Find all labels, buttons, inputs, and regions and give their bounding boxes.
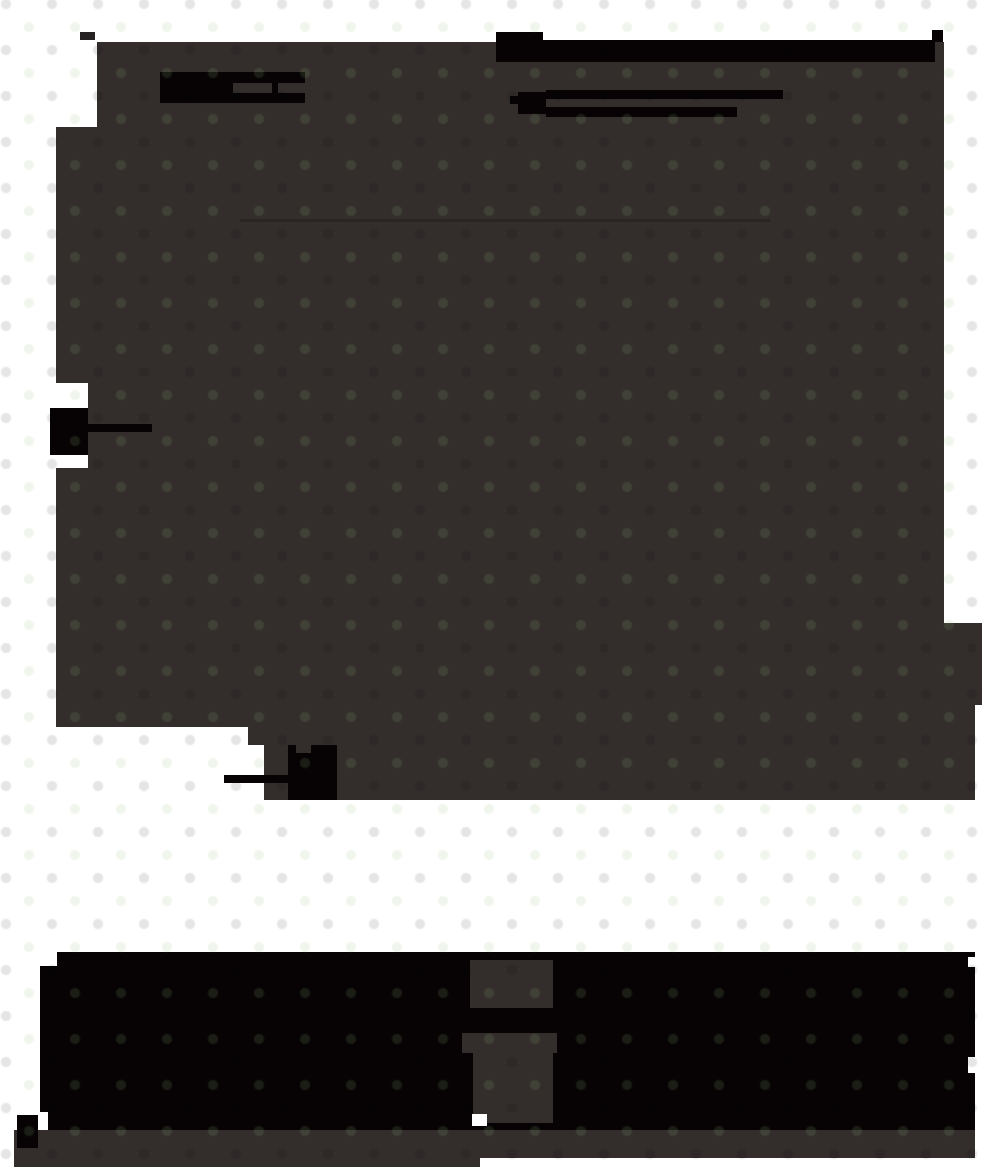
- subhead-line-1: [546, 90, 783, 99]
- headline-bar-block: [496, 32, 543, 62]
- base-band: [14, 1130, 975, 1158]
- blob-marker-line: [224, 775, 288, 783]
- white-pocket-step: [248, 745, 264, 800]
- footer-cutout-cap: [462, 1033, 557, 1053]
- footer-white-pocket-left: [40, 1112, 48, 1130]
- footer-cutout-column: [473, 1053, 553, 1123]
- footer-cutout-upper: [470, 960, 553, 1008]
- content-mass-bottom-right: [248, 705, 975, 800]
- blob-marker: [288, 745, 337, 800]
- base-tab: [17, 1115, 38, 1148]
- blob-marker-notch: [296, 745, 311, 753]
- redaction-bar-a-notch-1: [233, 83, 272, 93]
- headline-bar-tick: [932, 30, 943, 42]
- content-mass-bottom-left: [56, 705, 248, 727]
- faint-rule: [240, 219, 770, 222]
- content-mass-mid: [56, 127, 944, 623]
- corner-chip: [80, 32, 95, 40]
- page-canvas: [0, 0, 982, 1167]
- subhead-line-2: [546, 107, 737, 117]
- footer-notch-right-2: [968, 1057, 982, 1073]
- pin-marker-line: [80, 424, 152, 432]
- headline-bar-long: [543, 40, 935, 62]
- footer-notch-right-1: [968, 957, 982, 967]
- subhead-nub: [510, 96, 518, 104]
- footer-white-speck: [472, 1114, 487, 1126]
- subhead-block: [518, 92, 546, 114]
- base-band-left-extension: [14, 1155, 480, 1167]
- content-mass-right-bump: [56, 623, 982, 705]
- redaction-bar-a-notch-2: [278, 83, 305, 93]
